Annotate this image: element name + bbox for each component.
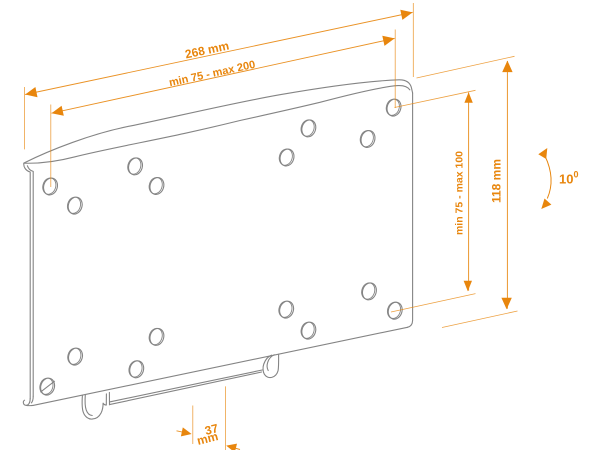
svg-text:118 mm: 118 mm <box>490 159 504 203</box>
svg-text:10: 10 <box>559 172 573 187</box>
svg-text:0: 0 <box>574 170 579 180</box>
svg-text:min 75 - max 100: min 75 - max 100 <box>453 151 465 235</box>
